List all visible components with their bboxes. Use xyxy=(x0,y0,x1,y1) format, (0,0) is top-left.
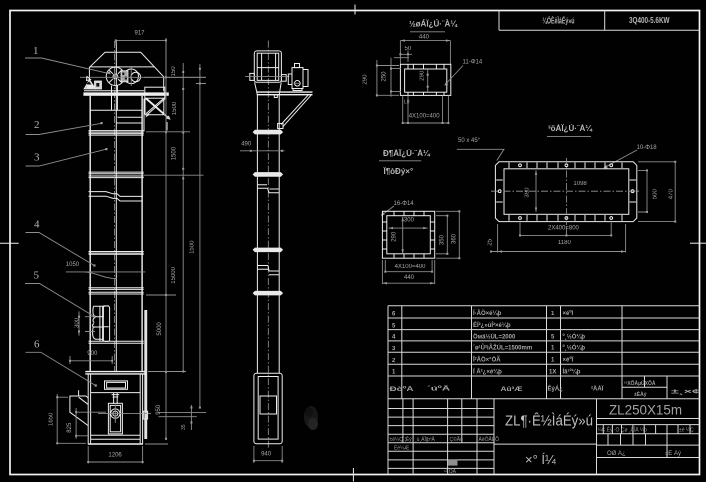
svg-text:Î¶òÐý×°: Î¶òÐý×° xyxy=(383,167,414,176)
svg-text:ÉÏ²¿»úÍ²×é¼þ: ÉÏ²¿»úÍ²×é¼þ xyxy=(473,321,511,329)
svg-text:1500: 1500 xyxy=(172,101,178,115)
svg-text:917: 917 xyxy=(135,31,146,37)
svg-text:1500: 1500 xyxy=(190,240,196,254)
svg-text:360: 360 xyxy=(451,233,457,244)
svg-text:50 x 45°: 50 x 45° xyxy=(458,138,481,144)
svg-text:×° Í¼: ×° Í¼ xyxy=(525,452,556,467)
svg-text:1500: 1500 xyxy=(171,146,177,160)
svg-text:Éè¼Æ: Éè¼Æ xyxy=(394,444,409,451)
svg-text:ÊýÁ¿: ÊýÁ¿ xyxy=(548,385,564,393)
svg-text:490: 490 xyxy=(241,142,252,148)
svg-text:¹²XÕÅµÚXÕÅ: ¹²XÕÅµÚXÕÅ xyxy=(624,380,656,387)
svg-text:×éºÏ: ×éºÏ xyxy=(563,357,574,364)
svg-text:1050: 1050 xyxy=(66,262,80,268)
svg-text:390: 390 xyxy=(525,187,531,198)
svg-text:900: 900 xyxy=(87,351,98,357)
svg-text:6: 6 xyxy=(34,339,40,351)
svg-text:ÖØ Á¿: ÖØ Á¿ xyxy=(607,450,626,457)
svg-text:´úºÅ: ´úºÅ xyxy=(427,386,451,393)
svg-text:±ê¼Ç´¦Êý: ±ê¼Ç´¦Êý xyxy=(390,435,413,443)
svg-text:35: 35 xyxy=(181,424,187,430)
svg-text:290: 290 xyxy=(391,231,397,242)
svg-text:11-Φ14: 11-Φ14 xyxy=(463,60,483,66)
svg-text:±¸×¢: ±¸×¢ xyxy=(671,390,702,396)
svg-text:Ç©Ãû: Ç©Ãû xyxy=(450,436,464,443)
svg-text:10-Φ18: 10-Φ18 xyxy=(637,145,658,151)
svg-text:¹² ÕÅ: ¹² ÕÅ xyxy=(444,468,457,475)
svg-text:3: 3 xyxy=(34,152,40,164)
svg-text:²ÄÁÏ: ²ÄÁÏ xyxy=(591,386,604,393)
svg-text:º¸½Ó¼þ: º¸½Ó¼þ xyxy=(563,344,586,352)
svg-text:1650: 1650 xyxy=(49,412,55,426)
svg-text:×éºÏ: ×éºÏ xyxy=(563,310,574,317)
svg-text:±ê ¼Ç: ±ê ¼Ç xyxy=(679,428,694,434)
svg-text:25: 25 xyxy=(488,238,494,245)
svg-text:150: 150 xyxy=(171,66,177,77)
svg-text:¼ÓÈëÌáÉý»ú: ¼ÓÈëÌáÉý»ú xyxy=(543,17,575,26)
svg-text:¼Ç Êý ·Ö Çø ¸ÄÎÄ ¼þ: ¼Ç Êý ·Ö Çø ¸ÄÎÄ ¼þ xyxy=(598,426,648,434)
svg-text:300: 300 xyxy=(75,317,81,328)
svg-text:Î²ÂÖ×°ÖÃ: Î²ÂÖ×°ÖÃ xyxy=(472,356,501,364)
svg-text:Ð¶ÁÏ¿Ú·¨À¼: Ð¶ÁÏ¿Ú·¨À¼ xyxy=(383,149,431,158)
svg-text:500: 500 xyxy=(653,189,659,200)
svg-text:470: 470 xyxy=(669,189,675,200)
svg-text:440: 440 xyxy=(419,34,430,40)
svg-text:300: 300 xyxy=(404,218,415,224)
svg-text:940: 940 xyxy=(261,452,272,458)
svg-text:4X100=400: 4X100=400 xyxy=(395,264,427,270)
svg-text:5000: 5000 xyxy=(157,322,163,336)
svg-text:4: 4 xyxy=(34,219,40,231)
svg-text:±È Àý: ±È Àý xyxy=(665,450,681,457)
svg-text:16-Φ14: 16-Φ14 xyxy=(394,201,415,207)
svg-text:290: 290 xyxy=(420,70,426,81)
svg-text:ZL250X15m: ZL250X15m xyxy=(609,403,682,418)
svg-text:1206: 1206 xyxy=(108,452,122,458)
svg-text:4X100=400: 4X100=400 xyxy=(409,113,441,119)
svg-text:1X: 1X xyxy=(549,369,556,375)
svg-text:1098: 1098 xyxy=(573,181,587,187)
svg-text:Íâ¹º¼þ: Íâ¹º¼þ xyxy=(563,367,581,375)
svg-text:350: 350 xyxy=(439,234,445,245)
svg-text:Ï Â²¿×é¼þ: Ï Â²¿×é¼þ xyxy=(472,368,502,375)
svg-text:I: I xyxy=(166,122,169,134)
svg-text:½øÁÏ¿Ú·¨À¼: ½øÁÏ¿Ú·¨À¼ xyxy=(409,20,458,29)
svg-text:º¸½Ó¼þ: º¸½Ó¼þ xyxy=(563,332,586,340)
svg-text:´ø¹Û²ìÃŽÚL=1500mm: ´ø¹Û²ìÃŽÚL=1500mm xyxy=(473,344,532,352)
svg-text:825: 825 xyxy=(67,422,73,433)
svg-text:ÄêÔÂÈÕ: ÄêÔÂÈÕ xyxy=(479,436,500,443)
svg-text:±ÈÀý: ±ÈÀý xyxy=(634,390,647,398)
svg-text:Í·ÂÖ×é¼þ: Í·ÂÖ×é¼þ xyxy=(473,309,502,317)
svg-text:290: 290 xyxy=(363,74,369,85)
svg-text:1: 1 xyxy=(33,45,39,57)
svg-text:ZL¶·Ê½ÌáÉý»ú: ZL¶·Ê½ÌáÉý»ú xyxy=(505,413,593,430)
svg-text:2: 2 xyxy=(34,119,40,131)
svg-text:Öмä½ÚL=2000: Öмä½ÚL=2000 xyxy=(473,333,516,340)
svg-text:5: 5 xyxy=(34,270,40,282)
svg-text:440: 440 xyxy=(404,275,415,281)
svg-text:950: 950 xyxy=(156,404,162,415)
svg-text:Ãû³Æ: Ãû³Æ xyxy=(501,386,523,393)
svg-text:³öÁÏ¿Ú·¨À¼: ³öÁÏ¿Ú·¨À¼ xyxy=(548,124,593,133)
svg-text:L8: L8 xyxy=(404,99,410,105)
svg-text:ÐòºÅ: ÐòºÅ xyxy=(390,386,415,393)
svg-text:15000: 15000 xyxy=(171,266,177,283)
svg-text:1180: 1180 xyxy=(558,240,572,246)
svg-text:3Q400-5.6KW: 3Q400-5.6KW xyxy=(629,16,670,25)
svg-text:¸ü¸ÄÎļþºÅ: ¸ü¸ÄÎļþºÅ xyxy=(415,436,436,443)
svg-text:2X400=800: 2X400=800 xyxy=(548,226,580,232)
svg-text:250: 250 xyxy=(381,71,387,82)
